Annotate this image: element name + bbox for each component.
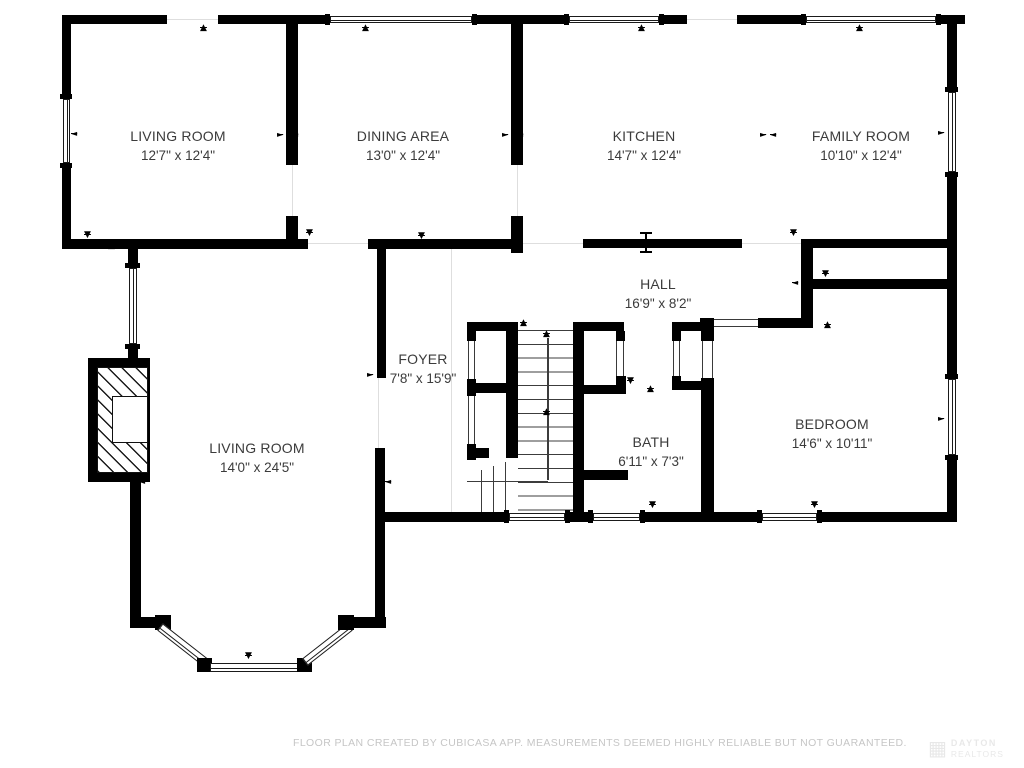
room-label-living-room-upper: LIVING ROOM 12'7" x 12'4": [93, 126, 263, 166]
wall: [801, 239, 957, 248]
stairs-up-arrow: ▲: [543, 330, 550, 339]
stair-line: [467, 481, 548, 482]
wall: [584, 385, 626, 394]
window: [806, 16, 936, 23]
disclaimer-text: FLOOR PLAN CREATED BY CUBICASA APP. MEAS…: [293, 737, 907, 749]
door-marker: ▲: [108, 242, 115, 251]
door-marker: ▼: [84, 231, 91, 240]
wall: [701, 318, 714, 341]
opening-marker: ◄: [517, 131, 523, 139]
door-marker: ▼: [790, 229, 797, 238]
door-marker: ▼: [306, 229, 313, 238]
wall: [616, 376, 626, 385]
guide-line: [308, 243, 368, 244]
room-dimensions: 16'9" x 8'2": [573, 294, 743, 314]
window: [63, 99, 70, 163]
closet-door-opening: [468, 396, 475, 444]
closet-door-opening: [673, 341, 680, 376]
window-marker: ▼: [811, 501, 818, 510]
realtor-logo-icon: ▦: [928, 739, 947, 759]
room-name: HALL: [573, 274, 743, 294]
wall: [758, 318, 803, 328]
room-name: BATH: [566, 432, 736, 452]
guide-line: [292, 165, 293, 216]
room-name: LIVING ROOM: [93, 126, 263, 146]
window-marker: ▼: [649, 501, 656, 510]
room-dimensions: 14'0" x 24'5": [172, 458, 342, 478]
closet-marker: ▲: [824, 321, 831, 330]
wall: [467, 444, 476, 460]
window-marker: ►: [938, 415, 944, 423]
fireplace-firebox: [112, 396, 148, 443]
window-marker: ◄: [71, 130, 77, 138]
room-dimensions: 7'8" x 15'9": [338, 369, 508, 389]
guide-line: [517, 165, 518, 216]
room-name: KITCHEN: [559, 126, 729, 146]
wall: [813, 279, 947, 289]
room-name: FAMILY ROOM: [776, 126, 946, 146]
wall: [947, 15, 957, 92]
wall: [801, 239, 813, 328]
room-dimensions: 12'7" x 12'4": [93, 146, 263, 166]
room-label-bath: BATH 6'11" x 7'3": [566, 432, 736, 472]
wall: [573, 322, 584, 513]
guide-line: [742, 243, 801, 244]
room-label-foyer: FOYER 7'8" x 15'9": [338, 349, 508, 389]
wall: [130, 482, 141, 625]
door-marker: ▼: [627, 377, 634, 386]
stairs-up-arrow: ▲: [543, 408, 550, 417]
window-marker: ▲: [638, 24, 645, 33]
watermark-line1: DAYTON: [951, 738, 1004, 749]
room-dimensions: 14'6" x 10'11": [747, 434, 917, 454]
wall: [664, 15, 687, 24]
door-opening: [714, 319, 758, 327]
window: [330, 16, 472, 23]
stair-line: [505, 462, 506, 513]
window: [593, 513, 640, 521]
door-tick: [640, 251, 652, 253]
window: [569, 16, 659, 23]
room-label-bedroom: BEDROOM 14'6" x 10'11": [747, 414, 917, 454]
wall: [62, 168, 71, 248]
room-name: BEDROOM: [747, 414, 917, 434]
room-name: DINING AREA: [318, 126, 488, 146]
wall: [62, 15, 71, 99]
room-label-dining-area: DINING AREA 13'0" x 12'4": [318, 126, 488, 166]
room-label-hall: HALL 16'9" x 8'2": [573, 274, 743, 314]
wall: [467, 322, 476, 341]
stairs-treads: [518, 330, 573, 513]
window-marker: ▲: [856, 24, 863, 33]
door-tick: [640, 232, 652, 234]
watermark: ▦ DAYTON REALTORS: [928, 738, 1004, 759]
door-tick: [645, 233, 647, 253]
wall: [506, 322, 518, 458]
guide-line: [687, 19, 737, 20]
wall: [947, 177, 957, 374]
wall: [368, 239, 513, 249]
window: [948, 379, 956, 455]
room-dimensions: 14'7" x 12'4": [559, 146, 729, 166]
door-marker: ◄: [139, 478, 145, 486]
wall: [822, 512, 957, 522]
wall: [584, 322, 624, 331]
window: [129, 268, 137, 344]
window-marker: ▼: [245, 652, 252, 661]
opening-marker: ►: [502, 131, 508, 139]
opening-marker: ►: [277, 131, 283, 139]
guide-line: [523, 243, 583, 244]
bay-window-center: [210, 663, 300, 672]
room-name: FOYER: [338, 349, 508, 369]
room-dimensions: 10'10" x 12'4": [776, 146, 946, 166]
opening-marker: ◄: [292, 131, 298, 139]
wall: [511, 15, 523, 165]
wall: [616, 331, 625, 341]
wall: [286, 15, 298, 165]
wall: [62, 15, 167, 24]
floor-plan: ▲ ▲ ▲ ▲ ▲ ▲ ◄ ► ◄ ► ◄ ► ◄ ► ► ▼ ▲ ▼ ▼ ▼ …: [0, 0, 1024, 768]
window: [948, 92, 956, 172]
opening-marker: ►: [760, 131, 766, 139]
closet-door-opening: [616, 341, 624, 376]
room-dimensions: 13'0" x 12'4": [318, 146, 488, 166]
room-label-family-room: FAMILY ROOM 10'10" x 12'4": [776, 126, 946, 166]
door-marker: ▲: [520, 319, 527, 328]
wall: [672, 331, 681, 341]
watermark-line2: REALTORS: [951, 749, 1004, 759]
room-label-living-room-lower: LIVING ROOM 14'0" x 24'5": [172, 438, 342, 478]
window: [762, 513, 817, 521]
door-marker: ▲: [647, 385, 654, 394]
stair-line: [481, 470, 482, 513]
wall: [382, 512, 509, 522]
window-marker: ▲: [362, 24, 369, 33]
door-marker: ▲: [200, 24, 207, 33]
wall: [218, 15, 325, 24]
wall: [345, 617, 386, 628]
room-label-kitchen: KITCHEN 14'7" x 12'4": [559, 126, 729, 166]
closet-marker: ◄: [792, 279, 798, 287]
closet-door-opening: [702, 341, 713, 378]
wall: [375, 448, 385, 628]
wall: [62, 239, 308, 249]
closet-marker: ▼: [822, 270, 829, 279]
room-name: LIVING ROOM: [172, 438, 342, 458]
wall: [645, 512, 762, 522]
guide-line: [167, 19, 218, 20]
wall: [737, 15, 801, 24]
stair-line: [493, 466, 494, 513]
door-marker: ◄: [385, 478, 391, 486]
window: [509, 513, 565, 521]
door-marker: ▼: [418, 232, 425, 241]
wall: [583, 239, 742, 248]
room-dimensions: 6'11" x 7'3": [566, 452, 736, 472]
